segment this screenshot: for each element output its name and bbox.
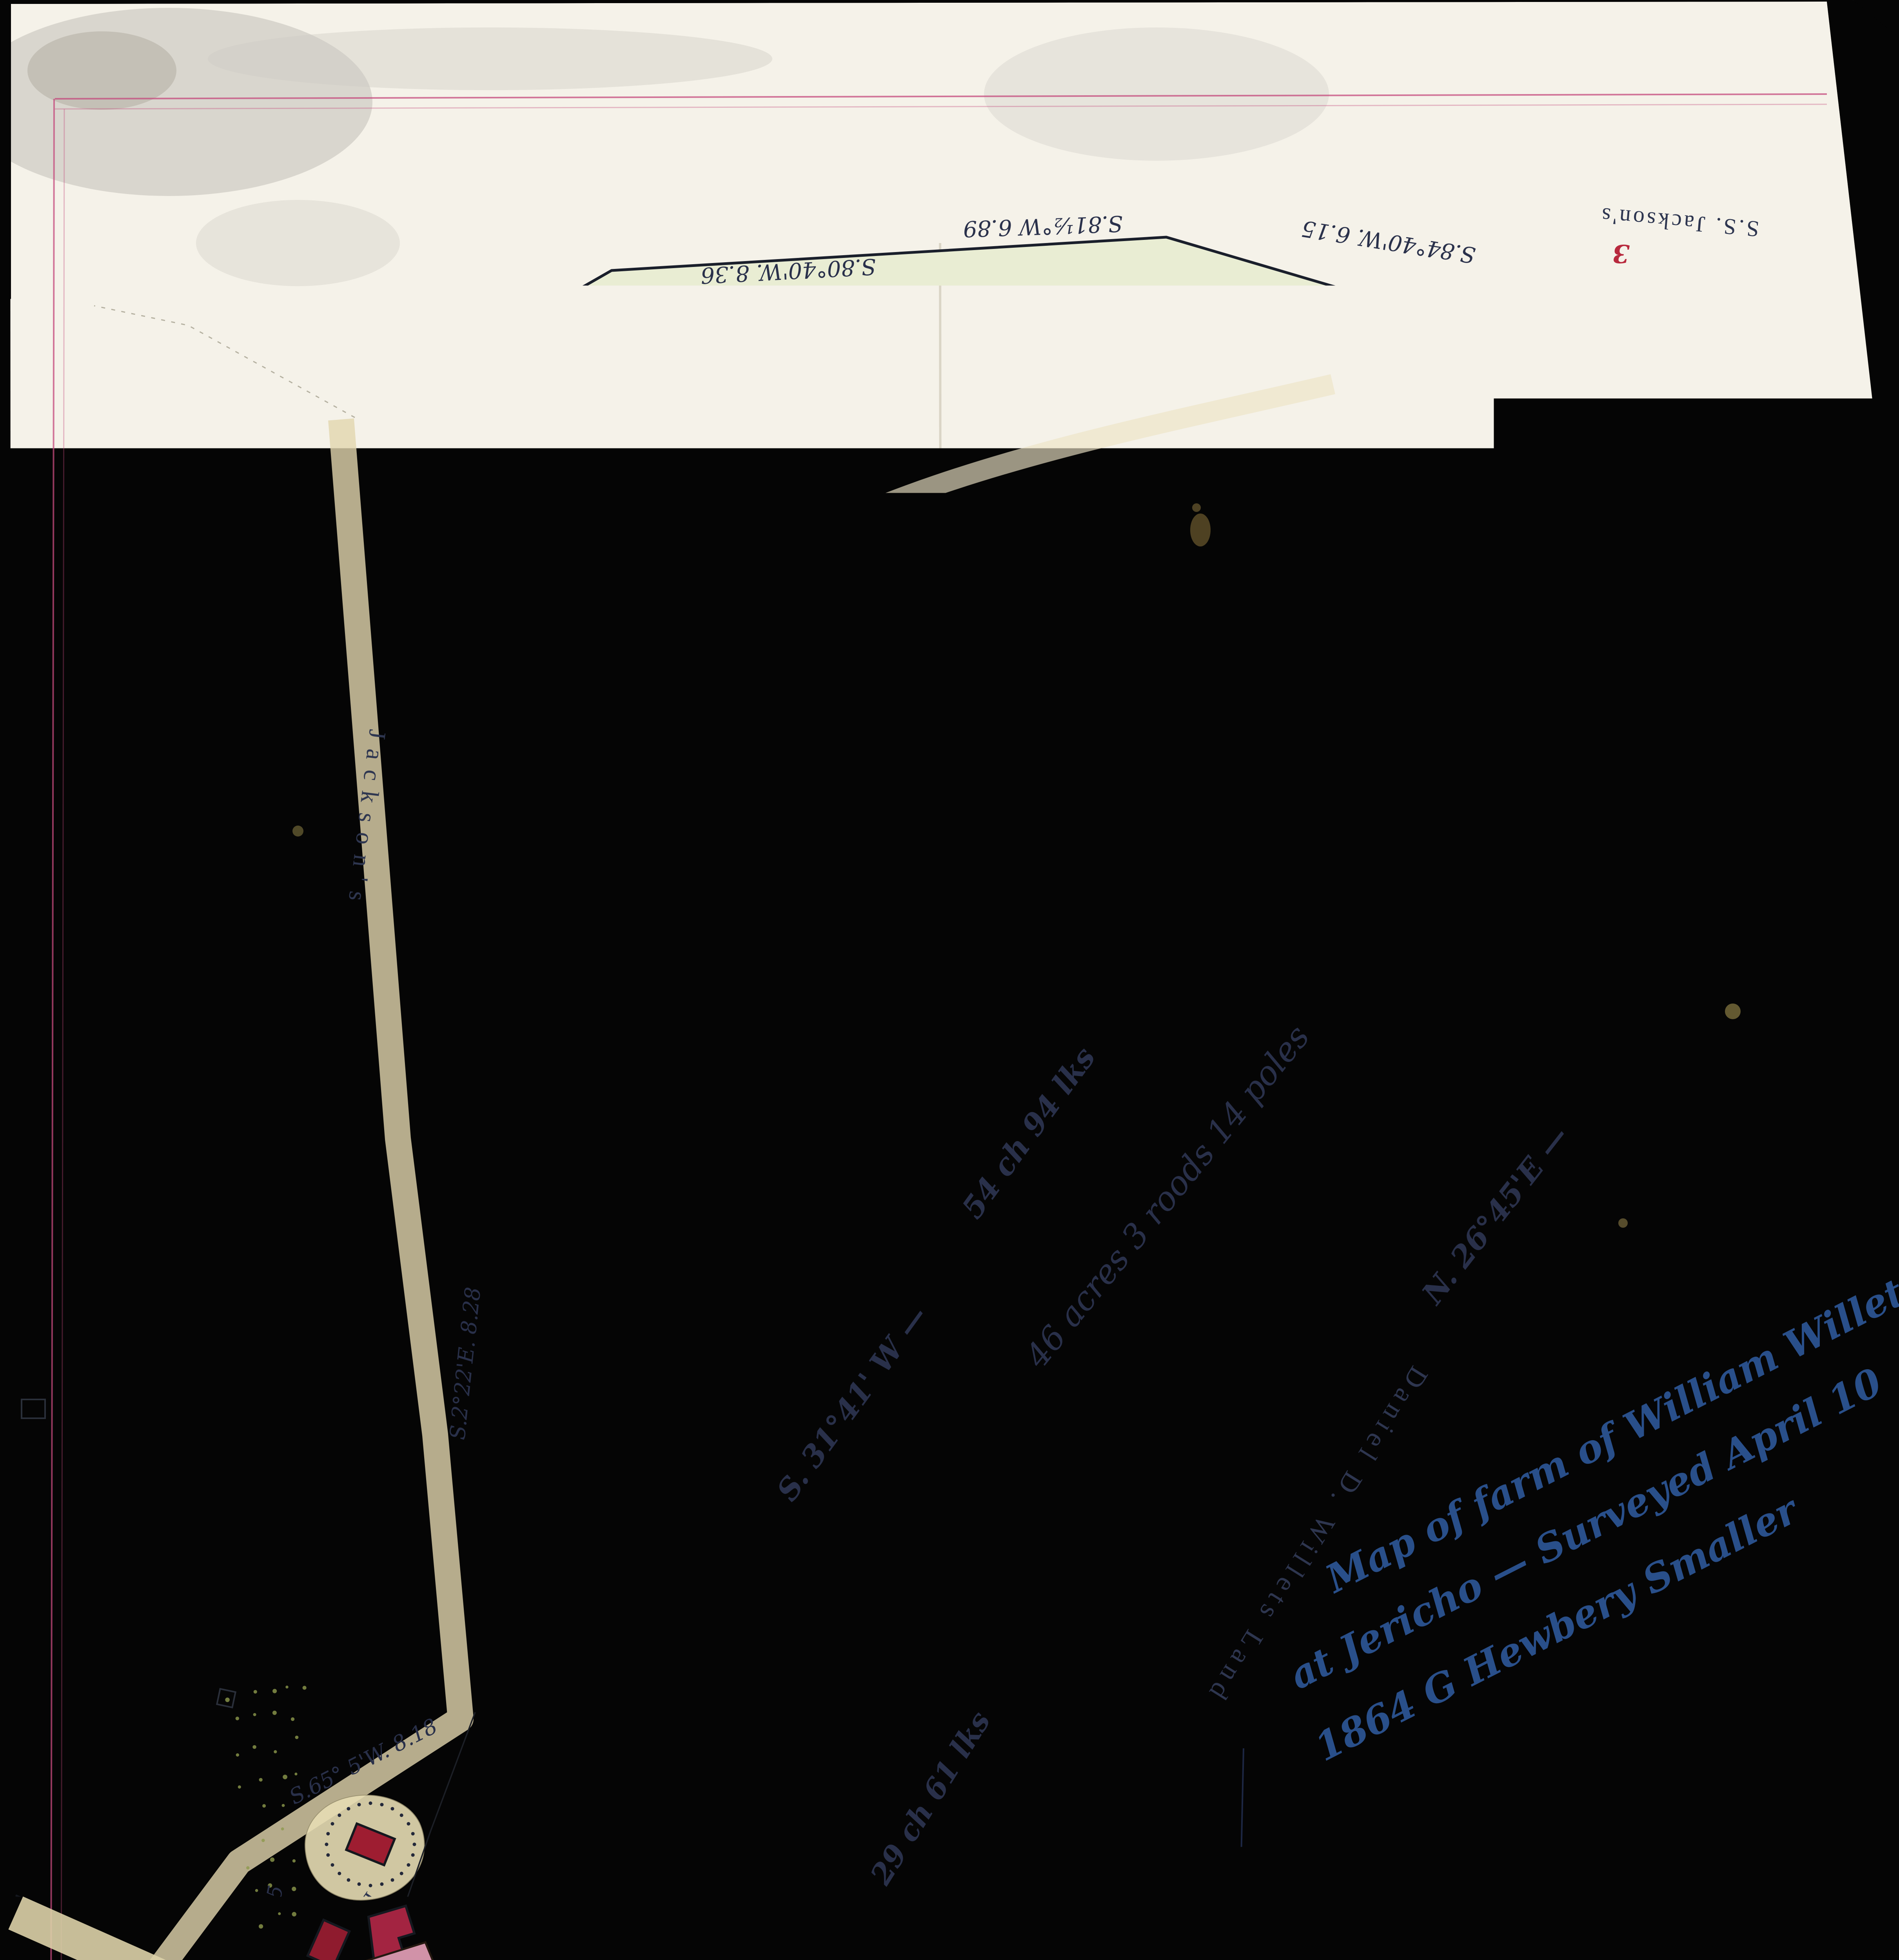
orchard-tree <box>1371 476 1383 488</box>
boundary-tree-base <box>747 1940 759 1946</box>
garden-ring-dot <box>358 1803 361 1806</box>
fir-tree-glint <box>1565 492 1568 494</box>
fir-tree-glint <box>1502 673 1505 676</box>
boundary-tree <box>1207 1325 1220 1339</box>
orchard-tree <box>1483 652 1498 668</box>
nursery-dot <box>310 1908 312 1911</box>
orchard-tree <box>1617 515 1631 530</box>
lane-tuft <box>412 773 421 779</box>
fir-tree-glint <box>1510 547 1513 550</box>
orchard-tree <box>1423 361 1434 372</box>
fir-tree-glint <box>1581 723 1584 726</box>
orchard-tree <box>1462 356 1475 368</box>
nursery-dot <box>428 1874 432 1878</box>
orchard-tree-core <box>1381 457 1385 461</box>
orchard-tree <box>1656 566 1672 583</box>
fir-tree <box>1594 724 1607 737</box>
nursery-dot <box>283 1775 287 1779</box>
boundary-tree-base <box>950 1651 962 1658</box>
fir-tree-glint <box>1527 685 1530 688</box>
fir-tree-glint <box>1466 669 1469 671</box>
fir-tree-glint <box>1497 616 1500 619</box>
orchard-tree-core <box>1477 405 1481 408</box>
orchard-tree-core <box>1392 488 1397 492</box>
orchard-tree <box>1501 686 1514 700</box>
orchard-tree <box>1468 598 1480 610</box>
nursery-dot <box>236 1717 239 1720</box>
nursery-dot <box>236 1753 239 1757</box>
boundary-tree-base <box>1059 1484 1071 1490</box>
orchard-tree-core <box>1598 383 1602 388</box>
garden-ring-dot <box>358 1882 361 1886</box>
garden-ring-dot <box>347 1807 350 1811</box>
fir-tree-glint <box>1613 477 1615 480</box>
orchard-tree-core <box>1465 359 1469 363</box>
fir-tree <box>1458 546 1472 560</box>
fir-tree-glint <box>1467 642 1470 644</box>
nursery-dot <box>246 1866 249 1869</box>
orchard-tree <box>1583 635 1595 648</box>
fir-tree <box>1590 511 1603 523</box>
orchard-tree-core <box>1717 343 1721 347</box>
orchard-tree-core <box>1443 349 1447 354</box>
fir-tree-glint <box>1564 632 1567 635</box>
orchard-tree-core <box>1661 421 1665 425</box>
fir-tree-glint <box>1601 731 1604 734</box>
orchard-tree <box>1499 463 1514 477</box>
garden-ring-dot <box>326 1832 330 1835</box>
fir-tree-glint <box>1454 589 1458 592</box>
garden-ring-dot <box>369 1802 372 1805</box>
orchard-tree <box>1375 530 1389 543</box>
fir-tree <box>1521 679 1532 690</box>
fir-tree-glint <box>1492 577 1494 580</box>
fir-tree <box>1486 572 1496 582</box>
fir-tree <box>1583 750 1593 760</box>
orchard-tree-core <box>1712 445 1716 448</box>
orchard-tree-core <box>1465 426 1468 429</box>
fir-tree-glint <box>1483 552 1485 554</box>
orchard-tree-core <box>1606 510 1610 515</box>
orchard-tree <box>1534 611 1545 622</box>
fir-tree-glint <box>1460 615 1463 617</box>
fir-tree-glint <box>1530 605 1532 608</box>
orchard-tree <box>1430 421 1444 436</box>
boundary-tree <box>888 1693 901 1707</box>
boundary-tree-base <box>732 1838 743 1844</box>
fir-tree-glint <box>1596 674 1599 677</box>
nursery-dot <box>344 1677 347 1680</box>
orchard-tree-core <box>1497 383 1502 387</box>
orchard-tree-core <box>1317 494 1322 499</box>
garden-ring-dot <box>400 1813 403 1817</box>
orchard-tree <box>1376 499 1392 515</box>
fir-tree <box>1619 608 1629 617</box>
nursery-dot <box>327 1712 331 1716</box>
fir-tree <box>1542 548 1552 558</box>
orchard-tree-core <box>1422 382 1427 386</box>
nursery-dot <box>272 1689 277 1693</box>
fir-tree <box>1522 500 1532 510</box>
boundary-tree-base <box>938 1591 950 1597</box>
orchard-tree-core <box>1419 448 1423 452</box>
orchard-tree-core <box>1695 383 1700 388</box>
fir-tree-glint <box>1485 615 1487 618</box>
orchard-tree-core <box>1551 628 1556 633</box>
orchard-tree <box>1671 385 1683 397</box>
orchard-tree-core <box>1471 601 1474 605</box>
fir-tree-glint <box>1576 574 1579 577</box>
fir-tree <box>1539 595 1551 607</box>
nursery-dot <box>255 1889 258 1892</box>
fir-tree <box>1505 519 1518 532</box>
fir-tree-glint <box>1518 621 1520 623</box>
orchard-tree-core <box>1373 444 1376 448</box>
garden-ring-dot <box>369 1884 372 1887</box>
orchard-tree <box>1590 701 1605 715</box>
orchard-tree <box>1495 429 1507 441</box>
boundary-tree <box>886 1616 901 1631</box>
boundary-tree <box>748 1927 763 1941</box>
orchard-tree-core <box>1674 387 1678 391</box>
fir-tree <box>1491 610 1503 622</box>
fir-tree-glint <box>1470 536 1472 539</box>
fir-tree-glint <box>1567 741 1570 744</box>
nursery-dot <box>270 1857 274 1862</box>
orchard-tree <box>1471 339 1483 351</box>
boundary-tree <box>951 1634 968 1652</box>
orchard-tree-core <box>1682 535 1686 538</box>
orchard-tree <box>1305 502 1318 514</box>
orchard-tree <box>1461 397 1472 408</box>
nursery-dot <box>403 1700 407 1704</box>
orchard-tree <box>1409 392 1420 404</box>
orchard-tree-core <box>1517 339 1521 343</box>
fir-tree-glint <box>1421 661 1424 664</box>
orchard-tree <box>1523 637 1535 649</box>
orchard-tree-core <box>1721 393 1725 397</box>
orchard-tree-core <box>1457 648 1461 653</box>
nursery-dot <box>294 1773 297 1775</box>
orchard-tree-core <box>1441 585 1445 588</box>
nursery-dot <box>254 1690 257 1693</box>
orchard-tree <box>1462 423 1473 434</box>
fir-tree-glint <box>1527 505 1530 508</box>
orchard-tree <box>1605 422 1620 437</box>
orchard-tree <box>1680 429 1696 445</box>
orchard-tree-core <box>1411 395 1415 399</box>
garden-ring-dot <box>380 1882 383 1886</box>
orchard-tree-core <box>1684 348 1688 352</box>
nursery-dot <box>412 1776 417 1780</box>
orchard-tree <box>1577 500 1588 512</box>
garden-ring-dot <box>380 1803 383 1806</box>
lane-tuft <box>418 832 428 840</box>
fir-tree-glint <box>1492 699 1495 702</box>
orchard-tree-core <box>1346 512 1350 515</box>
orchard-tree-core <box>1485 359 1490 364</box>
orchard-tree <box>1514 379 1525 391</box>
orchard-tree-core <box>1415 421 1419 425</box>
orchard-tree-core <box>1433 401 1436 405</box>
fir-tree <box>1468 584 1479 595</box>
fir-tree-glint <box>1510 714 1512 717</box>
nursery-dot <box>238 1786 241 1789</box>
orchard-tree-core <box>1579 503 1583 507</box>
orchard-tree-core <box>1379 503 1384 508</box>
fir-tree <box>1558 626 1570 639</box>
orchard-tree <box>1461 488 1477 505</box>
orchard-tree-core <box>1498 432 1501 435</box>
fir-tree <box>1447 628 1460 641</box>
fir-tree <box>1426 664 1440 677</box>
fir-tree-glint <box>1478 520 1481 523</box>
nursery-dot <box>295 1736 299 1739</box>
orchard-tree-core <box>1597 603 1601 608</box>
nursery-dot <box>445 1816 448 1819</box>
fir-tree-glint <box>1636 576 1638 579</box>
fir-tree <box>1525 600 1535 610</box>
orchard-tree-core <box>1392 408 1396 412</box>
fir-tree <box>1461 637 1472 647</box>
fir-tree <box>1589 668 1602 681</box>
orchard-tree-core <box>1464 492 1469 497</box>
orchard-tree-core <box>1461 383 1466 388</box>
orchard-tree-core <box>1526 707 1530 711</box>
garden-ring-dot <box>407 1822 410 1826</box>
lane-tuft <box>403 634 412 641</box>
boundary-tree <box>972 1588 991 1607</box>
orchard-tree <box>1378 454 1391 466</box>
junction-point <box>1417 309 1423 316</box>
fir-tree <box>1424 642 1434 651</box>
fir-tree <box>1535 494 1548 507</box>
orchard-tree <box>1415 564 1431 580</box>
lane-tuft <box>440 1172 452 1180</box>
fir-tree-glint <box>1446 657 1449 661</box>
garden-ring-dot <box>331 1863 334 1867</box>
nursery-dot <box>274 1750 277 1753</box>
orchard-tree-core <box>1516 382 1520 386</box>
fir-tree <box>1599 605 1610 617</box>
orchard-tree-core <box>1422 617 1426 621</box>
fir-tree <box>1552 513 1563 524</box>
orchard-tree <box>1471 452 1485 465</box>
fir-tree <box>1643 468 1656 481</box>
orchard-tree-core <box>1308 505 1312 509</box>
fir-tree-glint <box>1439 610 1442 613</box>
orchard-tree <box>1442 505 1457 520</box>
orchard-tree <box>1733 288 1749 303</box>
fir-tree-glint <box>1589 755 1591 757</box>
nursery-dot <box>291 1717 294 1721</box>
fir-tree <box>1569 641 1579 650</box>
fir-tree <box>1590 575 1603 588</box>
fir-tree <box>1630 571 1641 581</box>
orchard-tree-core <box>1578 328 1582 332</box>
fir-tree-glint <box>1585 539 1589 543</box>
fir-tree-glint <box>1491 531 1493 534</box>
orchard-tree <box>1575 325 1588 338</box>
fir-tree <box>1452 680 1462 690</box>
orchard-tree <box>1510 350 1523 363</box>
orchard-tree <box>1543 449 1556 462</box>
fir-tree <box>1481 588 1491 598</box>
orchard-tree-core <box>1382 426 1386 431</box>
fir-tree-glint <box>1535 656 1539 659</box>
fir-tree <box>1579 533 1591 546</box>
orchard-tree-core <box>1581 417 1585 421</box>
fir-tree <box>1478 547 1487 556</box>
orchard-tree <box>1621 620 1635 634</box>
orchard-tree-core <box>1581 743 1586 747</box>
nursery-dot <box>259 1778 263 1782</box>
orchard-tree <box>1681 345 1695 359</box>
orchard-tree <box>1430 474 1444 488</box>
fir-tree <box>1471 563 1484 576</box>
fir-tree <box>1512 616 1522 626</box>
orchard-tree-core <box>1506 404 1510 407</box>
lane-tuft <box>440 1318 449 1326</box>
orchard-tree <box>1653 348 1666 361</box>
nursery-dot <box>425 1820 428 1824</box>
boundary-tree <box>1229 1281 1243 1295</box>
fir-tree <box>1561 735 1572 747</box>
orchard-tree-core <box>1418 568 1423 572</box>
fir-tree <box>1472 694 1482 704</box>
boundary-tree-base <box>663 1916 674 1923</box>
orchard-tree-core <box>1630 427 1634 432</box>
fir-tree <box>1486 526 1496 536</box>
fir-tree <box>1628 506 1640 517</box>
orchard-tree <box>1359 495 1374 510</box>
boundary-tree-base <box>820 1777 832 1784</box>
orchard-tree <box>1643 610 1656 623</box>
nursery-dot <box>378 1786 382 1791</box>
orchard-tree-core <box>1524 416 1527 419</box>
orchard-tree-core <box>1609 350 1614 356</box>
garden-ring-dot <box>338 1872 341 1875</box>
fir-tree <box>1580 484 1594 497</box>
orchard-tree <box>1559 527 1572 539</box>
orchard-tree <box>1586 344 1597 355</box>
fir-tree <box>1623 476 1636 488</box>
orchard-tree <box>1761 281 1777 296</box>
fir-tree <box>1568 511 1582 525</box>
orchard-tree-core <box>1481 504 1485 507</box>
nursery-dot <box>225 1697 230 1702</box>
orchard-tree <box>1680 532 1691 543</box>
boundary-tree-base <box>1205 1338 1216 1344</box>
orchard-tree-core <box>1654 388 1658 392</box>
orchard-tree-core <box>1543 386 1547 390</box>
boundary-tree-base <box>973 1606 984 1612</box>
nursery-dot <box>401 1669 405 1673</box>
fir-tree <box>1461 664 1471 674</box>
fir-tree <box>1507 645 1517 654</box>
orchard-tree <box>1380 577 1395 592</box>
orchard-tree-core <box>1545 452 1549 456</box>
orchard-tree <box>1540 382 1553 396</box>
boundary-tree <box>1059 1466 1077 1484</box>
orchard-tree-core <box>1656 351 1660 355</box>
fir-tree-glint <box>1486 593 1489 595</box>
nursery-dot <box>292 1912 297 1916</box>
fir-tree <box>1598 687 1611 700</box>
fir-tree-glint <box>1539 702 1542 706</box>
fir-tree-glint <box>1433 670 1436 674</box>
nursery-dot <box>389 1694 392 1698</box>
fir-tree-glint <box>1622 650 1625 653</box>
fir-tree <box>1528 649 1541 662</box>
lane-tuft <box>438 1255 450 1263</box>
orchard-tree <box>1504 578 1520 594</box>
garden-ring-dot <box>338 1813 341 1817</box>
fir-tree <box>1452 564 1466 577</box>
fir-tree-glint <box>1650 535 1652 538</box>
orchard-tree <box>1419 378 1433 392</box>
garden-ring-dot <box>391 1807 394 1811</box>
boundary-tree-base <box>1017 1540 1029 1546</box>
orchard-tree-core <box>1445 508 1450 513</box>
fir-tree <box>1555 576 1565 586</box>
fir-tree-glint <box>1541 501 1545 504</box>
orchard-tree <box>1600 769 1617 785</box>
fir-tree-glint <box>1547 553 1549 555</box>
orchard-tree-core <box>1474 455 1479 459</box>
orchard-tree <box>1439 346 1454 361</box>
orchard-tree-core <box>1449 381 1453 385</box>
nursery-dot <box>426 1696 428 1699</box>
orchard-tree-core <box>1433 425 1437 429</box>
orchard-tree <box>1614 724 1630 740</box>
fir-tree-glint <box>1541 635 1544 638</box>
lane-tuft <box>412 918 422 926</box>
fir-tree <box>1557 702 1569 714</box>
fir-tree <box>1507 568 1518 580</box>
orchard-tree <box>1710 442 1721 453</box>
orchard-tree-core <box>1637 346 1641 350</box>
fir-tree-glint <box>1605 611 1607 613</box>
garden-ring-dot <box>413 1843 416 1846</box>
fir-tree-glint <box>1474 590 1477 592</box>
orchard-tree-core <box>1486 656 1491 661</box>
nursery-dot <box>449 1847 453 1851</box>
fir-tree <box>1495 666 1508 679</box>
orchard-tree-core <box>1536 613 1540 617</box>
orchard-tree-core <box>1449 454 1453 458</box>
orchard-tree-core <box>1705 305 1709 309</box>
fir-tree-glint <box>1561 581 1563 583</box>
fir-tree-glint <box>1587 490 1590 494</box>
orchard-tree <box>1733 334 1747 348</box>
nursery-dot <box>323 1797 327 1800</box>
garden-ring-dot <box>411 1853 415 1857</box>
red-numeral-3: 3 <box>1612 239 1630 268</box>
orchard-tree <box>1445 450 1460 465</box>
orchard-tree <box>1503 401 1516 413</box>
orchard-tree-core <box>1646 613 1650 617</box>
orchard-tree-core <box>1337 473 1342 477</box>
orchard-tree-core <box>1596 459 1599 462</box>
orchard-tree-core <box>1604 773 1609 778</box>
orchard-tree <box>1634 558 1646 570</box>
orchard-tree-core <box>1502 466 1507 470</box>
orchard-tree-core <box>1696 474 1699 478</box>
fir-tree-glint <box>1545 601 1549 604</box>
orchard-tree <box>1605 346 1622 363</box>
orchard-tree-core <box>1637 561 1640 565</box>
